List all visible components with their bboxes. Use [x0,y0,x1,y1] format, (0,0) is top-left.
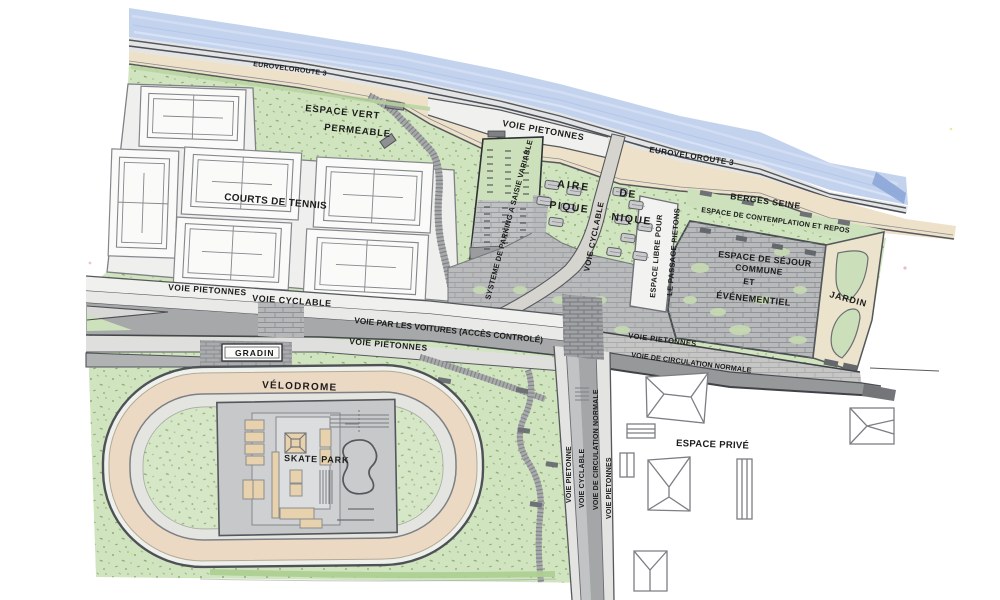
svg-text:VOIE PIETONNE: VOIE PIETONNE [566,446,573,503]
svg-text:VOIE PIETONNES: VOIE PIETONNES [606,457,613,519]
svg-text:VOIE DE CIRCULATION NORMALE: VOIE DE CIRCULATION NORMALE [593,389,600,510]
svg-text:ET: ET [743,276,756,287]
svg-text:GRADIN: GRADIN [235,348,275,358]
svg-text:VOIE CYCLABLE: VOIE CYCLABLE [579,448,586,508]
svg-text:DE: DE [619,187,638,201]
